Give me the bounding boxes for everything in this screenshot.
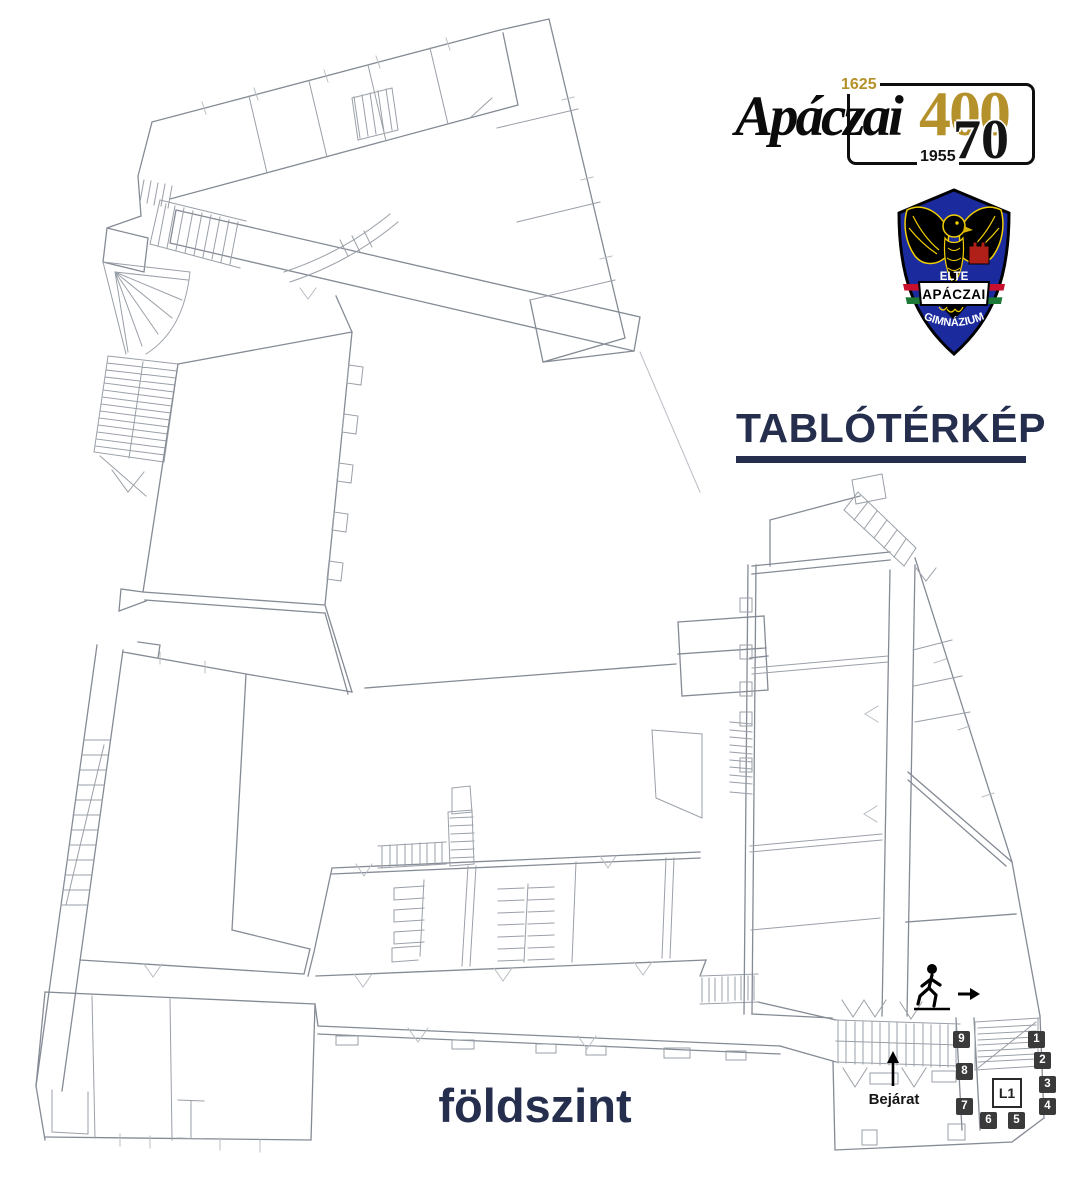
tableau-marker-1: 1: [1028, 1031, 1045, 1048]
grand-staircase: [94, 356, 178, 496]
tableau-marker-9: 9: [953, 1031, 970, 1048]
page-title-block: TABLÓTÉRKÉP: [736, 406, 1026, 463]
wc-stalls: [392, 880, 424, 962]
right-wing: [730, 474, 1040, 1016]
tableau-marker-4: 4: [1039, 1098, 1056, 1115]
tableau-marker-7: 7: [956, 1098, 973, 1115]
tableau-marker-3: 3: [1039, 1076, 1056, 1093]
bench-room: [498, 884, 554, 962]
walking-person-icon: [902, 962, 980, 1012]
middle-rooms: [308, 786, 706, 976]
courtyard-block: [36, 616, 768, 1140]
logo-year-bottom: 1955: [917, 148, 959, 166]
lift-box: L1: [992, 1078, 1022, 1108]
fan-stair: [103, 262, 190, 354]
logo-wordmark: Apáczai: [735, 88, 901, 145]
mid-staircase: [378, 786, 474, 868]
left-staircase: [61, 740, 110, 905]
ne-staircase: [844, 474, 916, 566]
crest-school: APÁCZAI: [922, 287, 986, 302]
tableau-marker-5: 5: [1008, 1112, 1025, 1129]
floor-label: földszint: [425, 1078, 645, 1133]
tablo-map-page: 1625 400 70 Apáczai 1955 ELTE APÁCZAI: [0, 0, 1080, 1196]
tableau-marker-2: 2: [1034, 1052, 1051, 1069]
great-hall: [119, 296, 352, 694]
entrance-up-arrow-icon: [884, 1050, 902, 1088]
school-crest: ELTE APÁCZAI GIMNÁZIUM: [893, 186, 1015, 358]
page-title: TABLÓTÉRKÉP: [736, 406, 1026, 451]
anniversary-logo: 1625 400 70 Apáczai 1955: [735, 70, 1045, 175]
anniversary-70: 70: [953, 112, 1009, 168]
title-underline: [736, 456, 1026, 463]
tableau-marker-8: 8: [956, 1063, 973, 1080]
tableau-marker-6: 6: [980, 1112, 997, 1129]
upper-wing: [94, 19, 700, 694]
entrance-label: Bejárat: [854, 1091, 934, 1108]
floor-plan-drawing: [0, 0, 1080, 1196]
